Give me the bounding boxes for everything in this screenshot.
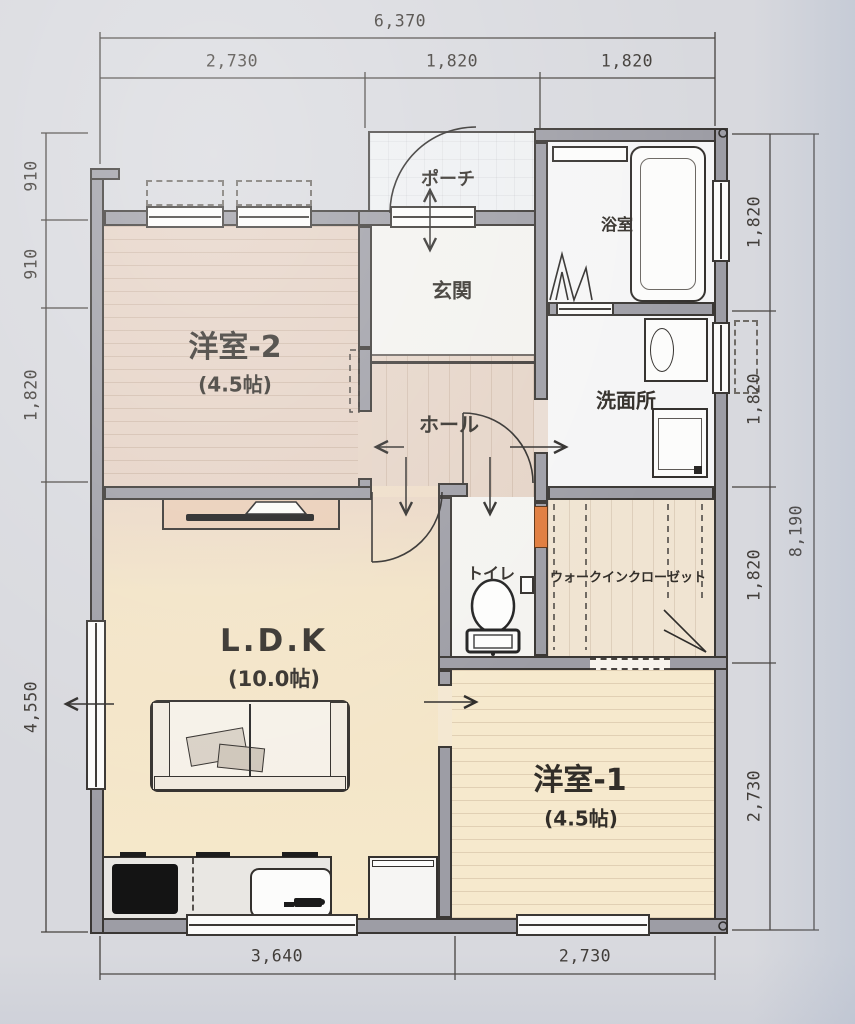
opening-hall-washroom xyxy=(534,400,548,452)
tv xyxy=(186,514,314,521)
wall-left xyxy=(90,168,104,934)
stove xyxy=(112,864,178,914)
dim-right-total: 8,190 xyxy=(787,505,806,557)
wall-yoshitsu1-left-b xyxy=(438,746,452,918)
orange-door-panel xyxy=(534,506,548,548)
window-bath-right xyxy=(712,180,730,262)
counter-handle-2 xyxy=(196,852,230,857)
wall-hall-stub xyxy=(438,483,468,497)
window-washroom-right xyxy=(712,322,730,394)
washbasin-bowl xyxy=(650,328,674,372)
floorplan-photo: 洋室-2 (4.5帖) L.D.K (10.0帖) 洋室-1 (4.5帖) ポー… xyxy=(0,0,855,1024)
label-yoshitsu2: 洋室-2 xyxy=(188,322,281,366)
window-yoshitsu2-a xyxy=(146,206,224,228)
label-ldk-size: (10.0帖) xyxy=(228,663,320,693)
dim-top-total: 6,370 xyxy=(374,12,426,31)
wall-yoshitsu2-right-a xyxy=(358,226,372,348)
sofa-cushion-2 xyxy=(217,744,265,773)
washing-machine-inner xyxy=(658,418,702,470)
refrigerator-handle xyxy=(372,860,434,867)
genkan-step-line-1 xyxy=(365,354,534,356)
ldk-passage-floor xyxy=(372,486,438,497)
dim-right-3: 2,730 xyxy=(745,770,764,822)
dim-top-seg-0: 2,730 xyxy=(206,52,258,71)
wall-yoshitsu2-right-b xyxy=(358,348,372,412)
eave-dashed-left xyxy=(146,180,224,206)
washing-machine-corner xyxy=(694,466,702,474)
label-bath: 浴室 xyxy=(601,211,633,235)
sofa-back xyxy=(154,776,346,790)
wall-yoshitsu2-bottom xyxy=(104,486,372,500)
dim-right-1: 1,820 xyxy=(745,373,764,425)
counter-handle-3 xyxy=(282,852,318,857)
dim-top-seg-1: 1,820 xyxy=(426,52,478,71)
entrance-door xyxy=(390,206,476,228)
label-yoshitsu1: 洋室-1 xyxy=(533,755,626,799)
counter-divider xyxy=(192,858,194,920)
opening-yoshitsu2-door xyxy=(358,412,372,478)
bath-shelf xyxy=(552,146,628,162)
opening-ldk-yoshitsu1 xyxy=(438,686,452,746)
wall-wic-bottom xyxy=(438,656,728,670)
window-ldk-left xyxy=(86,620,106,790)
wall-top-bath xyxy=(534,128,728,142)
wall-washroom-wic xyxy=(548,486,714,500)
label-ldk: L.D.K xyxy=(220,623,328,659)
wall-toilet-left xyxy=(438,497,452,670)
dim-left-3: 4,550 xyxy=(22,681,41,733)
label-washroom: 洗面所 xyxy=(596,385,656,414)
dim-right-2: 1,820 xyxy=(745,549,764,601)
window-yoshitsu2-b xyxy=(236,206,312,228)
label-yoshitsu2-size: (4.5帖) xyxy=(198,369,272,398)
dim-top-seg-2: 1,820 xyxy=(601,52,653,71)
dim-left-1: 910 xyxy=(22,248,41,279)
label-yoshitsu1-size: (4.5帖) xyxy=(544,803,618,832)
label-wic: ウォークインクローゼット xyxy=(550,567,706,586)
bathtub-inner xyxy=(640,158,696,290)
wic-dashed-opening xyxy=(590,658,670,670)
label-genkan: 玄関 xyxy=(432,275,472,304)
dim-right-0: 1,820 xyxy=(745,196,764,248)
dim-left-0: 910 xyxy=(22,160,41,191)
dim-bottom-0: 3,640 xyxy=(251,947,303,966)
window-ldk-bottom xyxy=(186,914,358,936)
wall-center-col-a xyxy=(534,142,548,400)
kitchen-sink xyxy=(250,868,332,918)
wall-left-cap xyxy=(90,168,120,180)
wall-yoshitsu1-left-a xyxy=(438,670,452,686)
dim-bottom-1: 2,730 xyxy=(559,947,611,966)
eave-dashed-right xyxy=(236,180,312,206)
label-toilet: トイレ xyxy=(467,560,515,584)
window-yoshitsu1-bottom xyxy=(516,914,650,936)
toilet-paper-holder xyxy=(520,576,534,594)
bath-door xyxy=(556,302,614,316)
label-porch: ポーチ xyxy=(421,165,475,191)
dim-left-2: 1,820 xyxy=(22,369,41,421)
label-hall: ホール xyxy=(419,409,479,438)
sofa-seat-divider xyxy=(249,704,251,776)
wall-center-col-b xyxy=(534,452,548,502)
counter-handle-1 xyxy=(120,852,146,857)
genkan-step-line-2 xyxy=(365,361,534,364)
